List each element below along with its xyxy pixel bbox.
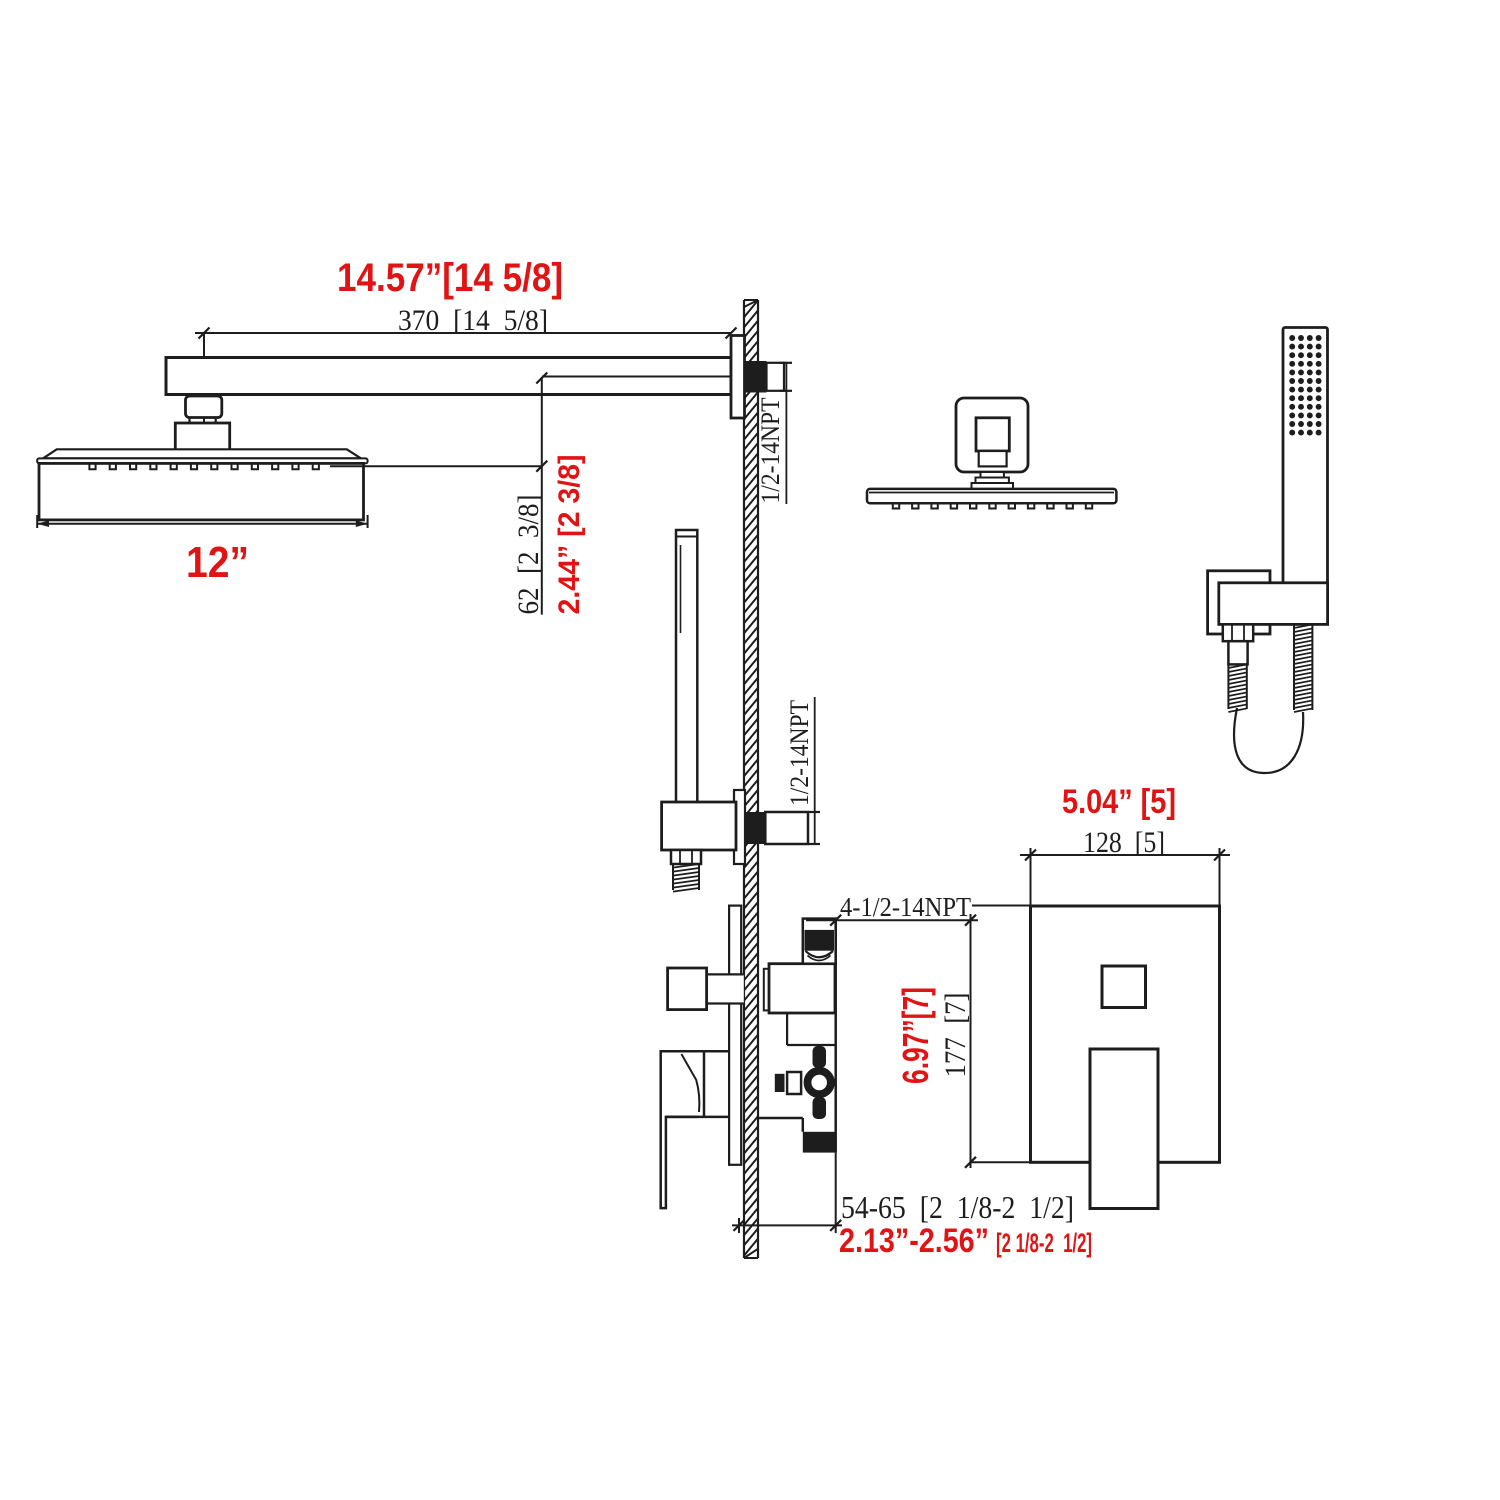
svg-text:1/2-14NPT: 1/2-14NPT bbox=[785, 700, 814, 806]
svg-text:5.04” [5]: 5.04” [5] bbox=[1062, 783, 1176, 821]
svg-text:2.13”-2.56”: 2.13”-2.56” bbox=[839, 1222, 989, 1260]
svg-text:54-65 [2 1/8-2 1/2]: 54-65 [2 1/8-2 1/2] bbox=[841, 1189, 1074, 1225]
svg-text:12”: 12” bbox=[186, 538, 249, 587]
svg-text:62 [2 3/8]: 62 [2 3/8] bbox=[512, 495, 545, 615]
svg-text:14.57”[14 5/8]: 14.57”[14 5/8] bbox=[337, 256, 563, 300]
svg-text:4-1/2-14NPT: 4-1/2-14NPT bbox=[840, 892, 971, 922]
svg-text:177 [7]: 177 [7] bbox=[939, 993, 972, 1078]
svg-text:370 [14 5/8]: 370 [14 5/8] bbox=[398, 304, 548, 337]
svg-text:2.44” [2 3/8]: 2.44” [2 3/8] bbox=[553, 455, 586, 615]
svg-text:6.97”[7]: 6.97”[7] bbox=[895, 987, 936, 1084]
svg-text:[2 1/8-2 1/2]: [2 1/8-2 1/2] bbox=[996, 1228, 1092, 1258]
svg-text:1/2-14NPT: 1/2-14NPT bbox=[756, 397, 785, 503]
